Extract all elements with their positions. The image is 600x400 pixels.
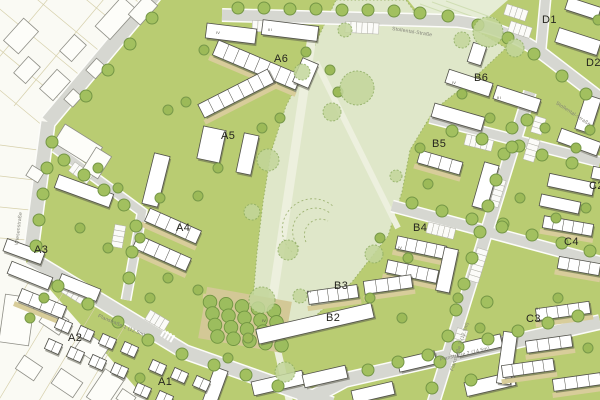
tree xyxy=(232,2,244,14)
tree xyxy=(98,184,110,196)
tree xyxy=(466,252,478,264)
tree xyxy=(213,163,223,173)
tree xyxy=(365,293,375,303)
orchard-tree xyxy=(211,330,225,344)
tree xyxy=(392,356,404,368)
tree xyxy=(176,348,188,360)
tree xyxy=(293,289,307,303)
tree xyxy=(155,193,165,203)
tree xyxy=(515,193,525,203)
tree xyxy=(512,325,524,337)
tree xyxy=(118,199,130,211)
tree xyxy=(572,310,584,322)
tree xyxy=(33,214,45,226)
tree xyxy=(340,71,374,105)
tree xyxy=(126,246,138,258)
map-canvas xyxy=(0,0,600,400)
tree xyxy=(423,179,433,189)
tree xyxy=(454,32,470,48)
tree xyxy=(390,170,402,182)
tree xyxy=(556,237,568,249)
tree xyxy=(540,123,550,133)
tree xyxy=(145,293,155,303)
tree xyxy=(325,65,335,75)
tree xyxy=(163,273,173,283)
tree xyxy=(37,188,49,200)
tree xyxy=(452,341,464,353)
tree xyxy=(528,48,540,60)
tree xyxy=(362,4,374,16)
tree xyxy=(403,253,413,263)
tree xyxy=(58,154,70,166)
tree xyxy=(75,223,85,233)
tree xyxy=(506,141,518,153)
tree xyxy=(506,122,518,134)
parking-stall xyxy=(367,23,373,34)
parking-stall xyxy=(373,23,379,34)
tree xyxy=(46,136,58,148)
tree xyxy=(446,125,458,137)
site-plan-map[interactable]: A1 A2 A3 A4 A5 A6 B2 B3 B4 B5 B6 C2 C3 C… xyxy=(0,0,600,400)
tree xyxy=(244,204,260,220)
tree xyxy=(453,293,463,303)
tree xyxy=(80,90,92,102)
tree xyxy=(521,114,533,126)
tree xyxy=(41,162,53,174)
tree xyxy=(130,220,142,232)
tree xyxy=(585,125,595,135)
tree xyxy=(258,2,270,14)
tree xyxy=(414,7,426,19)
tree xyxy=(506,39,524,57)
tree xyxy=(78,169,90,181)
orchard-tree xyxy=(227,332,241,346)
tree xyxy=(310,3,322,15)
tree xyxy=(181,97,191,107)
tree xyxy=(593,15,600,25)
tree xyxy=(473,17,503,47)
tree xyxy=(362,364,374,376)
tree xyxy=(375,233,385,243)
tree xyxy=(193,285,203,295)
tree xyxy=(93,163,103,173)
tree xyxy=(284,3,296,15)
tree xyxy=(442,10,454,22)
road xyxy=(540,0,546,58)
tree xyxy=(581,203,591,213)
tree xyxy=(556,70,568,82)
tree xyxy=(415,143,425,153)
tree xyxy=(583,343,593,353)
tree xyxy=(275,113,285,123)
tree xyxy=(388,5,400,17)
tree xyxy=(135,373,145,383)
tree xyxy=(542,317,554,329)
tree xyxy=(142,334,154,346)
tree xyxy=(275,362,295,382)
tree xyxy=(442,330,454,342)
tree xyxy=(163,105,173,115)
tree xyxy=(553,293,563,303)
tree xyxy=(146,12,158,24)
tree xyxy=(465,374,477,386)
tree xyxy=(482,333,494,345)
tree xyxy=(426,382,438,394)
tree xyxy=(422,349,434,361)
parking-stall xyxy=(356,22,362,33)
tree xyxy=(323,103,341,121)
tree xyxy=(30,240,42,252)
tree xyxy=(39,293,49,303)
tree xyxy=(584,245,596,257)
tree xyxy=(112,316,124,328)
tree xyxy=(365,245,383,263)
tree xyxy=(580,88,592,100)
tree xyxy=(25,313,35,323)
tree xyxy=(436,205,448,217)
tree xyxy=(278,240,298,260)
tree xyxy=(474,226,486,238)
tree xyxy=(526,229,538,241)
tree xyxy=(466,213,478,225)
tree xyxy=(481,296,493,308)
tree xyxy=(102,64,114,76)
tree xyxy=(199,45,209,55)
tree xyxy=(482,200,494,212)
tree xyxy=(103,243,113,253)
tree xyxy=(536,149,548,161)
tree xyxy=(301,47,311,57)
tree xyxy=(82,298,94,310)
tree xyxy=(294,64,310,80)
tree xyxy=(338,23,352,37)
tree xyxy=(135,233,145,243)
tree xyxy=(551,213,561,223)
tree xyxy=(566,157,578,169)
tree xyxy=(476,133,488,145)
tree xyxy=(406,197,418,209)
tree xyxy=(243,333,253,343)
tree xyxy=(249,287,275,313)
tree xyxy=(485,113,495,123)
parking-stall xyxy=(362,22,368,33)
tree xyxy=(496,221,508,233)
tree xyxy=(450,304,462,316)
tree xyxy=(124,38,136,50)
tree xyxy=(223,353,233,363)
tree xyxy=(571,143,581,153)
tree xyxy=(457,89,467,99)
tree xyxy=(113,183,123,193)
tree xyxy=(257,123,267,133)
tree xyxy=(123,272,135,284)
tree xyxy=(257,149,279,171)
tree xyxy=(336,4,348,16)
tree xyxy=(458,278,470,290)
tree xyxy=(208,359,220,371)
tree xyxy=(52,280,64,292)
tree xyxy=(475,323,485,333)
tree xyxy=(490,174,502,186)
tree xyxy=(240,369,252,381)
tree xyxy=(434,356,446,368)
tree xyxy=(193,191,203,201)
tree xyxy=(397,313,407,323)
